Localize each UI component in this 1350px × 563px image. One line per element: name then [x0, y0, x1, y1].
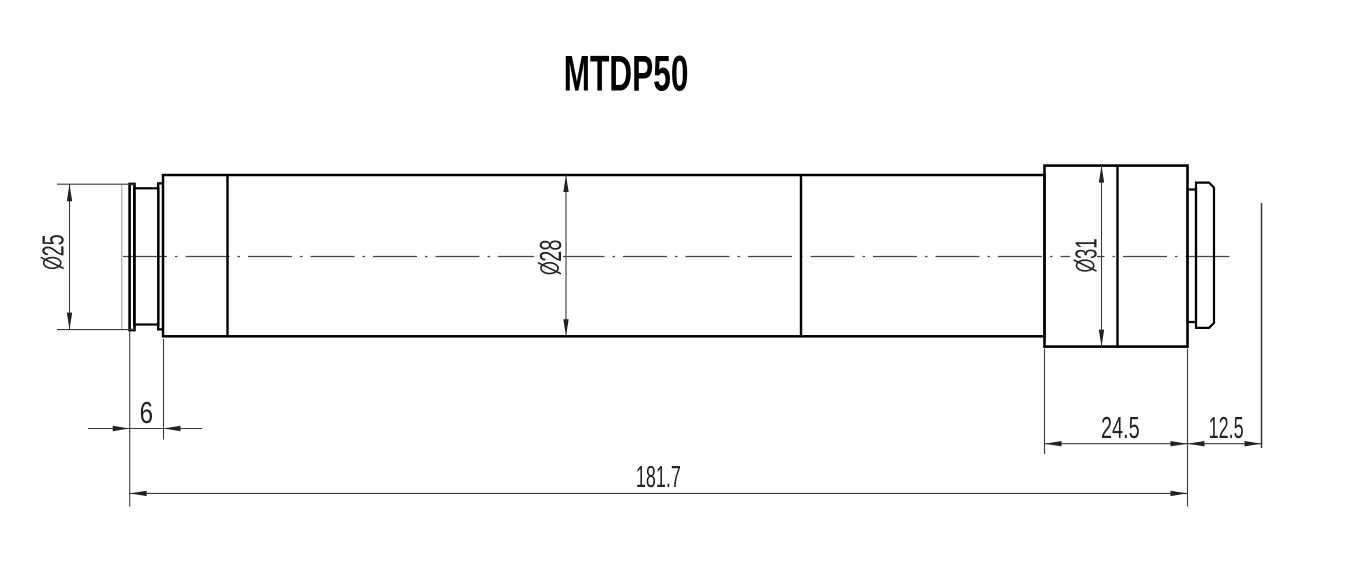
svg-text:25: 25 [35, 234, 71, 256]
svg-text:24.5: 24.5 [1101, 409, 1140, 445]
svg-text:MTDP50: MTDP50 [564, 45, 689, 101]
svg-text:181.7: 181.7 [636, 460, 681, 494]
svg-text:28: 28 [532, 240, 568, 262]
svg-text:12.5: 12.5 [1209, 411, 1244, 445]
svg-text:6: 6 [140, 395, 153, 430]
svg-text:31: 31 [1070, 238, 1104, 259]
